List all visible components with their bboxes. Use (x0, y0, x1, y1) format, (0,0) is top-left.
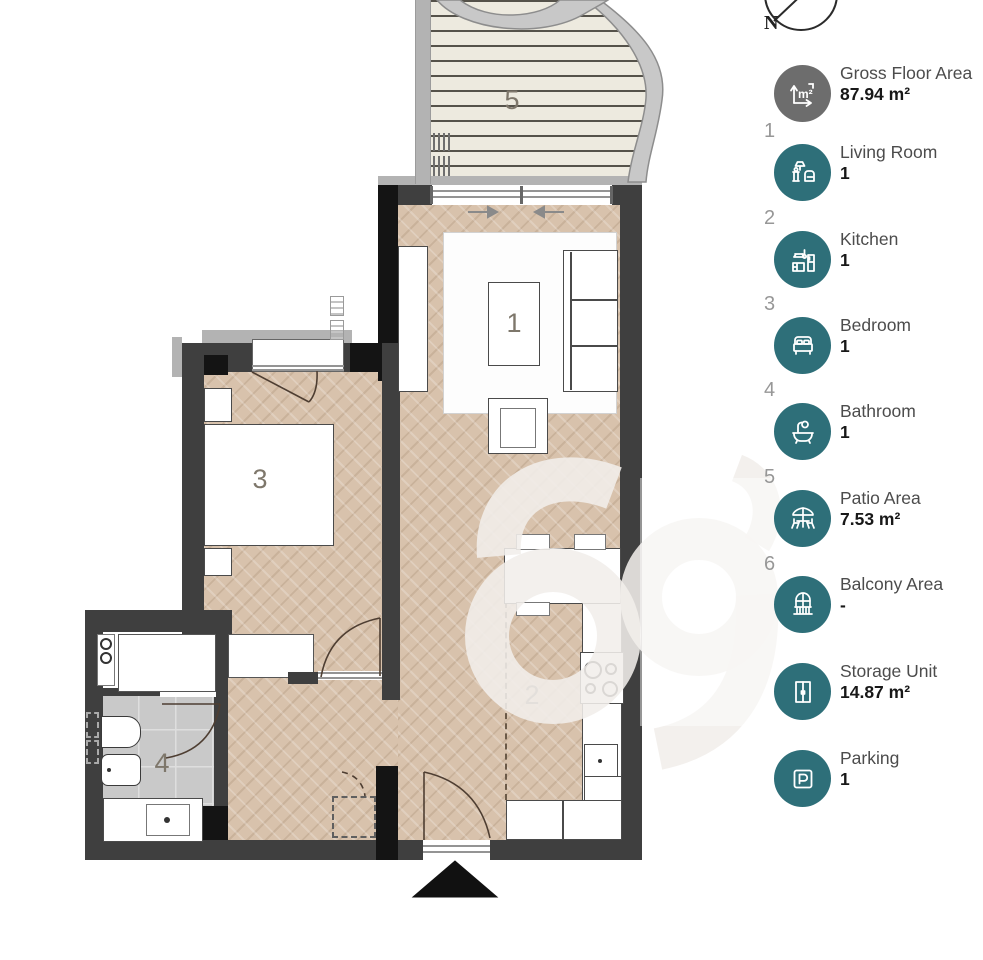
wall-bedroom-right (382, 343, 400, 700)
patio-deck-floor (429, 0, 650, 182)
legend-circle-gross-area: m² (774, 65, 831, 122)
shaft-marker (86, 740, 99, 764)
legend-value: 1 (840, 423, 983, 442)
faucet-dot (107, 768, 111, 772)
legend-value: 7.53 m² (840, 510, 983, 529)
tv-unit (398, 246, 428, 392)
kitchen-cabinet (584, 776, 622, 802)
legend-label: Storage Unit (840, 662, 983, 681)
legend-value: 87.94 m² (840, 85, 983, 104)
legend-value: 1 (840, 337, 983, 356)
area-icon: m² (785, 76, 821, 112)
legend-circle-bedroom (774, 317, 831, 374)
entrance-marker (413, 861, 497, 897)
burner (602, 681, 618, 697)
legend-value: 1 (840, 164, 983, 183)
threshold-line (318, 672, 382, 674)
nightstand (204, 548, 232, 576)
window-glass (252, 365, 344, 367)
radiator-symbol (330, 296, 344, 316)
legend-item-storage: Storage Unit 14.87 m² (840, 662, 983, 702)
wall-segment (288, 672, 318, 684)
legend-value: 1 (840, 770, 983, 789)
legend-item-bedroom: Bedroom 1 (840, 316, 983, 356)
wall-lip (172, 337, 182, 377)
window-glass (252, 369, 344, 371)
legend-label: Kitchen (840, 230, 983, 249)
kitchen-cabinets-bottom (506, 800, 622, 840)
sofa-front-line (570, 252, 572, 390)
bathroom-label: 4 (136, 748, 188, 779)
patio-icon (785, 501, 821, 537)
dining-table (504, 548, 621, 604)
legend-number: 6 (764, 553, 775, 576)
legend-item-kitchen: Kitchen 1 (840, 230, 983, 270)
burner (605, 663, 617, 675)
legend-item-parking: Parking 1 (840, 749, 983, 789)
niche-closet (118, 634, 216, 692)
legend-value: - (840, 596, 983, 615)
toilet (101, 716, 141, 748)
svg-text:m²: m² (798, 87, 813, 101)
bathroom-icon (785, 414, 821, 450)
legend-number: 5 (764, 466, 775, 489)
legend-circle-bathroom (774, 403, 831, 460)
optional-closet (332, 796, 376, 838)
wall-segment (85, 610, 230, 632)
wall-right (620, 185, 642, 860)
kitchen-icon (785, 242, 821, 278)
kitchen-label: 2 (506, 680, 558, 711)
patio-label: 5 (486, 85, 538, 116)
threshold-line (423, 851, 490, 853)
burner (585, 683, 596, 694)
living-room-label: 1 (488, 308, 540, 339)
wall-bedroom-left (182, 343, 204, 632)
threshold-line (423, 845, 490, 847)
legend-number: 4 (764, 379, 775, 402)
wall-segment (85, 840, 228, 860)
drain-dot (164, 817, 170, 823)
cabinet-divider (562, 801, 564, 839)
radiator-symbol (330, 320, 344, 340)
legend-item-bathroom: Bathroom 1 (840, 402, 983, 442)
legend-value: 14.87 m² (840, 683, 983, 702)
living-room-icon (785, 155, 821, 191)
legend-circle-patio (774, 490, 831, 547)
nightstand (204, 388, 232, 422)
legend-circle-kitchen (774, 231, 831, 288)
legend-label: Bathroom (840, 402, 983, 421)
patio-vent (433, 133, 450, 151)
parking-icon (785, 761, 821, 797)
patio-vent (433, 156, 450, 176)
legend-label: Parking (840, 749, 983, 768)
sofa-cushion-line (570, 299, 618, 301)
bedroom-window (252, 339, 344, 372)
wall-segment (350, 343, 378, 372)
storage-icon (785, 674, 821, 710)
legend-number: 3 (764, 293, 775, 316)
door-tick (610, 186, 613, 204)
legend-label: Patio Area (840, 489, 983, 508)
dining-chair (516, 534, 550, 550)
legend-value: 1 (840, 251, 983, 270)
legend-circle-storage (774, 663, 831, 720)
faucet-dot (598, 759, 602, 763)
legend-label: Balcony Area (840, 575, 983, 594)
legend-item-gross-area: Gross Floor Area 87.94 m² (840, 64, 983, 104)
side-chair (500, 408, 536, 448)
wall-segment (228, 840, 376, 860)
entrance-opening (423, 840, 490, 860)
legend-circle-living-room (774, 144, 831, 201)
washer-knob (100, 652, 112, 664)
dining-chair (574, 534, 606, 550)
door-tick (520, 186, 523, 204)
floorplan-page: 1 3 4 2 5 (0, 0, 983, 960)
legend-number: 1 (764, 120, 775, 143)
sofa-cushion-line (570, 345, 618, 347)
legend-label: Gross Floor Area (840, 64, 983, 83)
wall-segment (490, 840, 642, 860)
wall-bath-right (214, 632, 228, 808)
wall-segment (398, 840, 423, 860)
wall-segment (376, 766, 398, 860)
wall-segment (202, 355, 228, 375)
bedroom-label: 3 (234, 464, 286, 495)
legend-item-patio: Patio Area 7.53 m² (840, 489, 983, 529)
legend-circle-parking (774, 750, 831, 807)
shaft-marker (86, 712, 99, 738)
burner (584, 661, 602, 679)
threshold-line (318, 677, 382, 679)
balcony-icon (785, 587, 821, 623)
patio-left-edge (415, 0, 431, 184)
dining-chair (516, 602, 550, 616)
bedroom-icon (785, 328, 821, 364)
legend-circle-balcony (774, 576, 831, 633)
legend-label: Living Room (840, 143, 983, 162)
legend-number: 2 (764, 207, 775, 230)
legend-label: Bedroom (840, 316, 983, 335)
washer-knob (100, 638, 112, 650)
compass-north-label: N (764, 12, 778, 35)
door-tick (430, 186, 433, 204)
stove (580, 652, 624, 704)
legend-item-living-room: Living Room 1 (840, 143, 983, 183)
legend-item-balcony: Balcony Area - (840, 575, 983, 615)
